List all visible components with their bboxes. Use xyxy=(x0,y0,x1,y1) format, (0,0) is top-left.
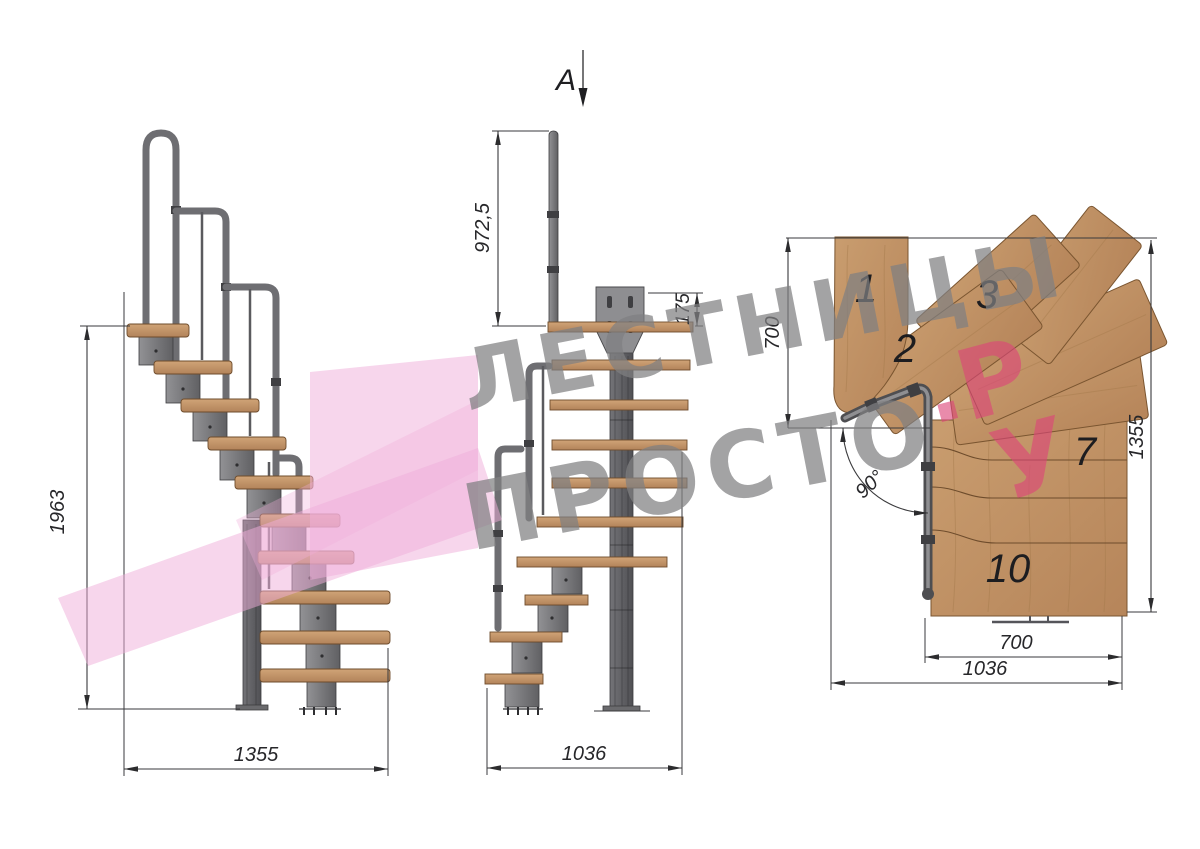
dim-height-1963: 1963 xyxy=(47,490,69,535)
dim-total-width-1036: 1036 xyxy=(963,658,1008,680)
step-number-10: 10 xyxy=(986,547,1031,591)
dim-lower-width-700: 700 xyxy=(999,632,1032,654)
front-view-post xyxy=(547,131,559,326)
plan-floor-bracket xyxy=(992,616,1069,622)
drawing-canvas: 1963 1355 A xyxy=(0,0,1200,849)
anchor-bolts-icon xyxy=(503,707,543,715)
step-number-7: 7 xyxy=(1074,430,1098,474)
anchor-bolts-icon xyxy=(299,707,341,715)
dim-width-1355: 1355 xyxy=(234,744,279,766)
dim-post-972-5: 972,5 xyxy=(472,202,494,253)
staircase-technical-drawing: 1963 1355 A xyxy=(0,0,1200,849)
section-label: A xyxy=(554,64,576,97)
dim-width-1036: 1036 xyxy=(562,743,607,765)
section-arrow: A xyxy=(554,50,588,107)
dim-depth-1355: 1355 xyxy=(1126,414,1148,459)
section-arrow-icon xyxy=(579,88,588,107)
